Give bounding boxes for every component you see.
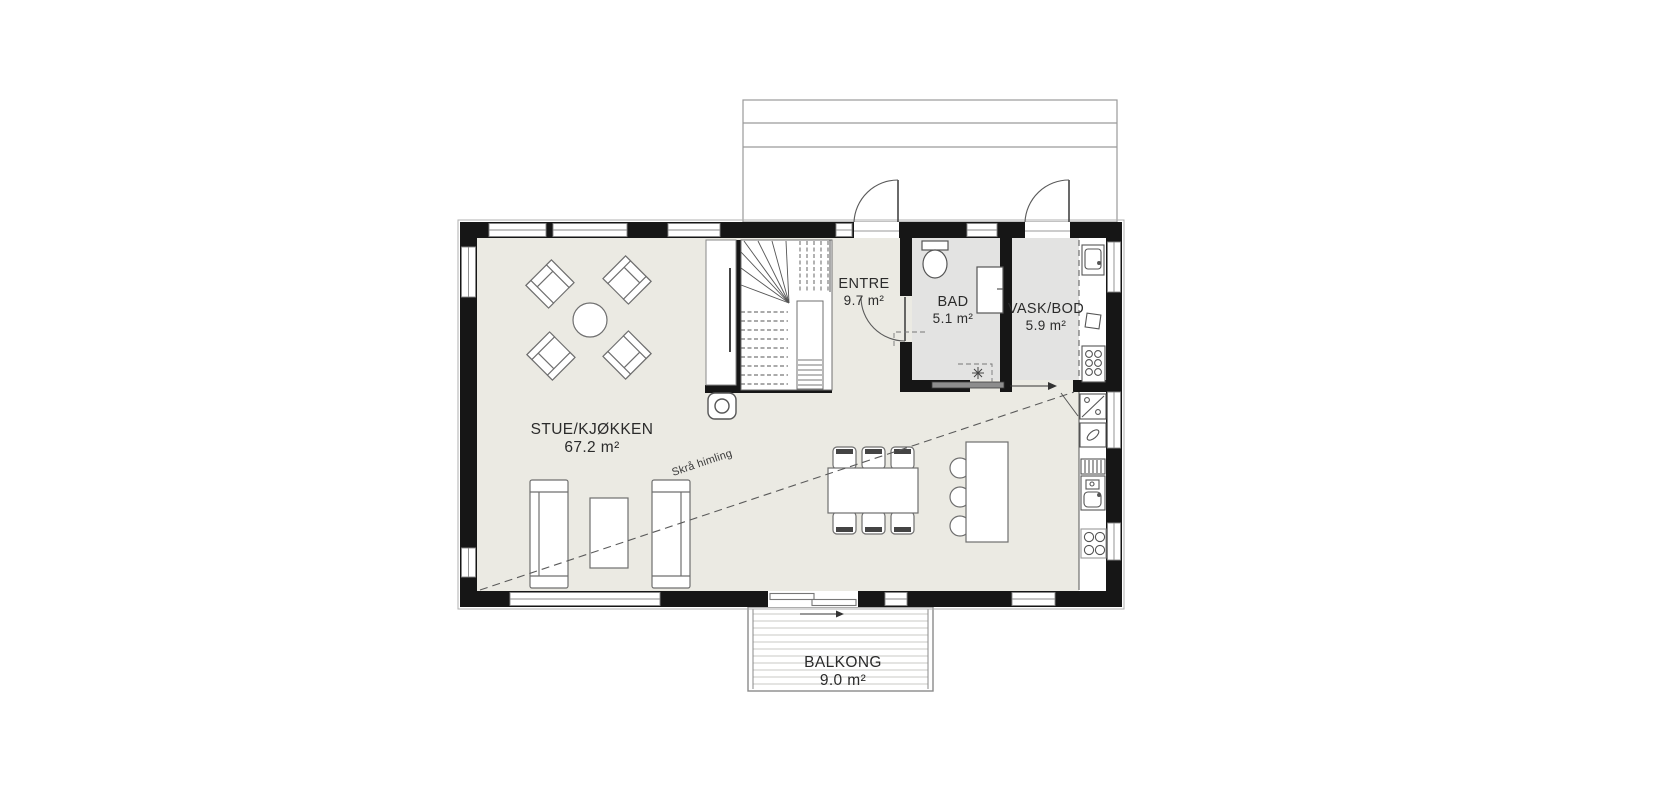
room-label-stue: STUE/KJØKKEN [531, 421, 654, 438]
coffee-table-icon [590, 498, 628, 568]
shower-cabinet-icon [977, 267, 1003, 313]
room-label-balkong: BALKONG [804, 654, 882, 671]
window-icon [1108, 523, 1121, 560]
dining-chair-icon [862, 447, 885, 469]
dining-table-icon [828, 468, 918, 513]
room-label-bad: BAD [937, 294, 968, 310]
floor-plan-canvas: STUE/KJØKKEN 67.2 m² ENTRE 9.7 m² BAD 5.… [0, 0, 1670, 800]
kitchen-sink-icon [1081, 476, 1105, 510]
dining-chair-icon [891, 447, 914, 469]
window-icon [510, 593, 660, 606]
kitchen-island-icon [966, 442, 1008, 542]
round-table-icon [573, 303, 607, 337]
vent-hood-icon [1081, 459, 1105, 474]
dishwasher-icon [1080, 394, 1106, 419]
window-icon [462, 548, 476, 577]
window-icon [553, 224, 627, 237]
floor-plan-drawing: STUE/KJØKKEN 67.2 m² ENTRE 9.7 m² BAD 5.… [0, 0, 1670, 800]
washing-machine-icon [1082, 346, 1105, 382]
window-icon [885, 593, 907, 606]
staircase-icon [706, 240, 832, 390]
cabinet-icon [1080, 423, 1106, 447]
wood-stove-icon [708, 393, 736, 419]
dining-chair-icon [862, 512, 885, 534]
room-area-balkong: 9.0 m² [820, 672, 866, 689]
room-label-vaskbod: VASK/BOD [1008, 301, 1084, 317]
dining-group [828, 447, 918, 534]
window-icon [668, 224, 720, 237]
sofa-icon [652, 480, 690, 588]
dining-chair-icon [833, 512, 856, 534]
window-icon [462, 247, 476, 297]
window-icon [1108, 242, 1121, 292]
cooktop-icon [1081, 529, 1106, 558]
room-area-stue: 67.2 m² [564, 439, 619, 456]
dining-chair-icon [891, 512, 914, 534]
water-heater-icon [1085, 313, 1101, 329]
window-icon [489, 224, 546, 237]
window-icon [967, 224, 997, 237]
window-icon [1012, 593, 1055, 606]
room-area-bad: 5.1 m² [933, 311, 974, 326]
window-icon [1108, 392, 1121, 448]
room-area-entre: 9.7 m² [844, 293, 885, 308]
stair-closet [706, 240, 736, 385]
window-icon [836, 224, 852, 237]
room-area-vaskbod: 5.9 m² [1026, 318, 1067, 333]
toilet-icon [922, 241, 948, 278]
room-label-entre: ENTRE [838, 276, 889, 292]
utility-sink-icon [1082, 245, 1104, 275]
entrance-deck [743, 100, 1117, 222]
